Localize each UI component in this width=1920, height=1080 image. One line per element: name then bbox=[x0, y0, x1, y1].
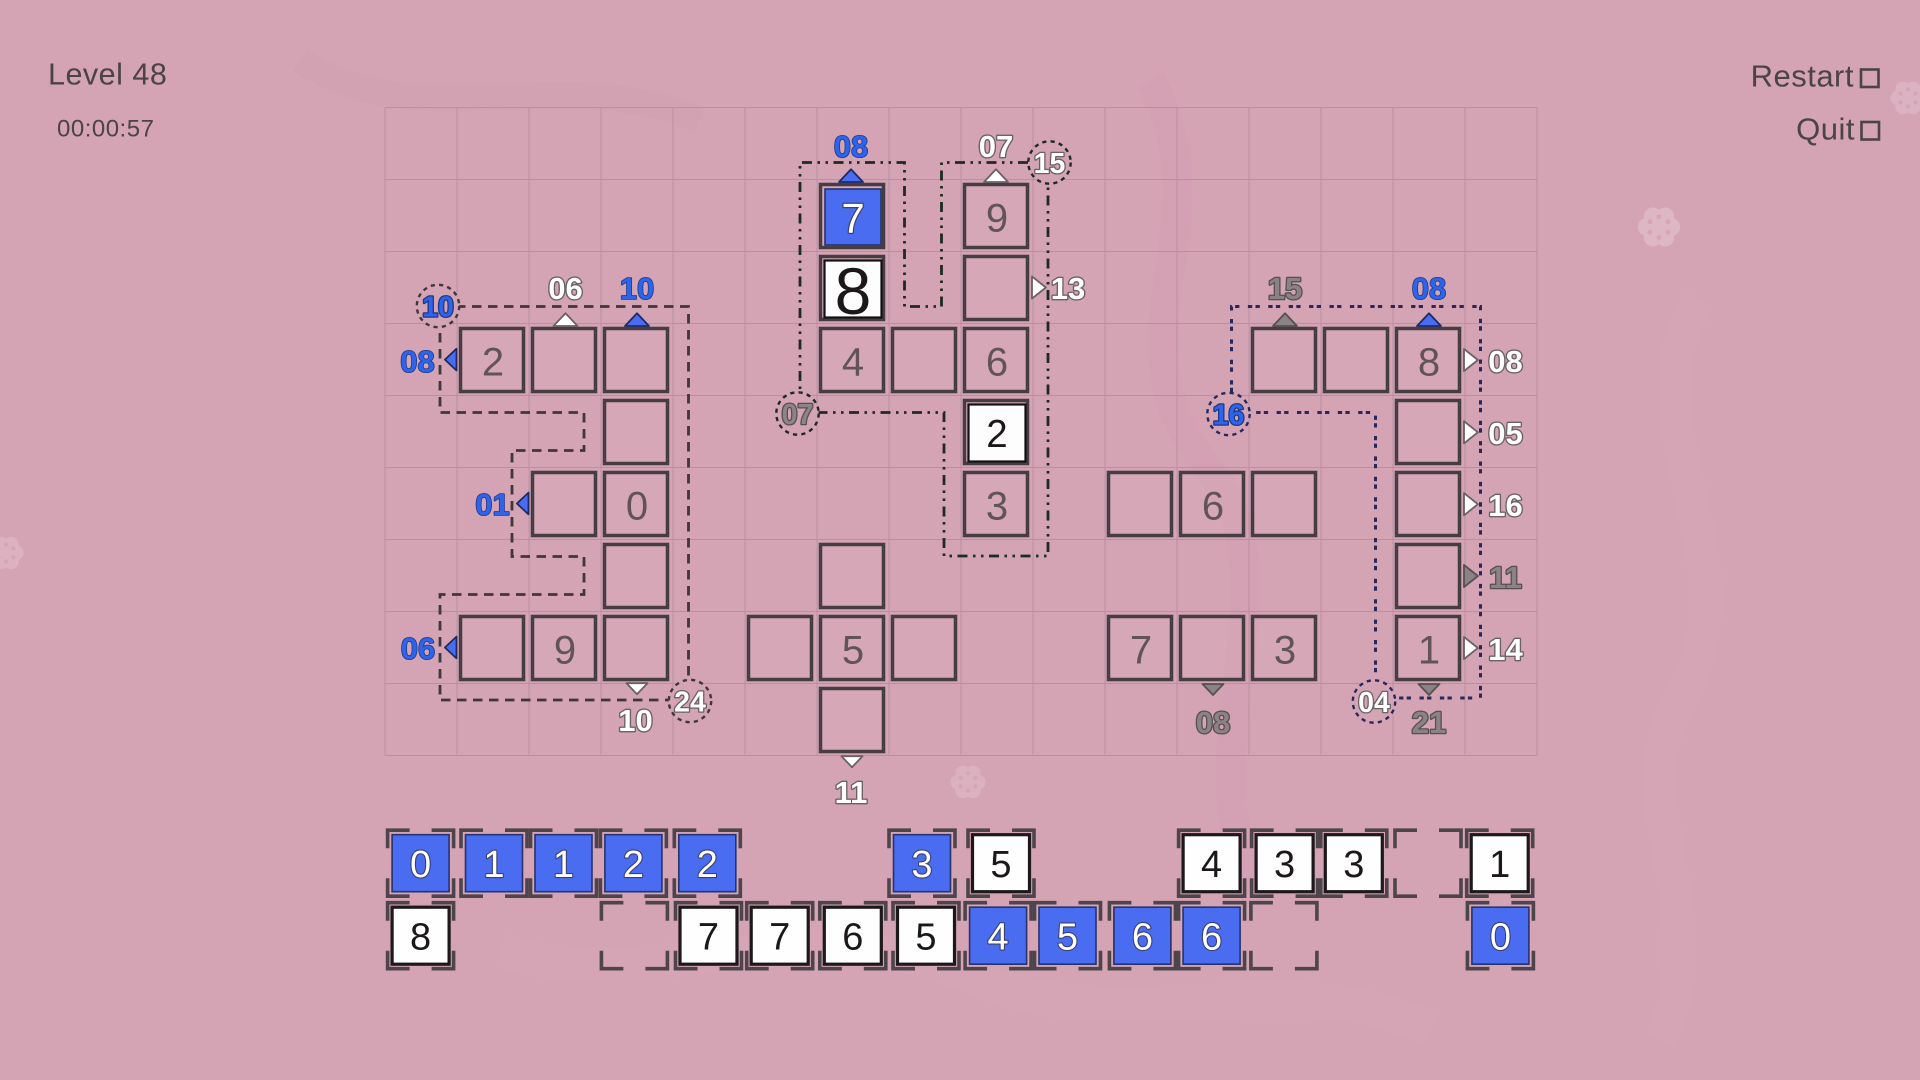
svg-text:4: 4 bbox=[988, 917, 1009, 959]
svg-text:8: 8 bbox=[835, 254, 872, 328]
svg-text:6: 6 bbox=[1132, 917, 1153, 959]
svg-text:7: 7 bbox=[841, 194, 864, 241]
svg-text:9: 9 bbox=[554, 629, 576, 673]
svg-text:07: 07 bbox=[979, 129, 1013, 164]
svg-text:0: 0 bbox=[410, 844, 431, 886]
svg-text:01: 01 bbox=[475, 487, 509, 522]
svg-text:15: 15 bbox=[1268, 271, 1302, 306]
svg-text:24: 24 bbox=[674, 686, 706, 718]
svg-text:3: 3 bbox=[1274, 629, 1296, 673]
svg-text:14: 14 bbox=[1488, 632, 1523, 667]
svg-text:6: 6 bbox=[1201, 917, 1222, 959]
svg-text:04: 04 bbox=[1358, 687, 1390, 719]
svg-text:8: 8 bbox=[410, 917, 431, 959]
svg-text:5: 5 bbox=[842, 629, 864, 673]
svg-text:3: 3 bbox=[1274, 844, 1295, 886]
svg-text:7: 7 bbox=[1130, 629, 1152, 673]
svg-text:08: 08 bbox=[1196, 705, 1230, 740]
svg-text:4: 4 bbox=[842, 341, 864, 385]
svg-text:13: 13 bbox=[1051, 271, 1085, 306]
svg-text:10: 10 bbox=[618, 703, 652, 738]
svg-text:0: 0 bbox=[1490, 917, 1511, 959]
svg-text:08: 08 bbox=[1412, 271, 1446, 306]
svg-text:06: 06 bbox=[401, 631, 435, 666]
svg-text:2: 2 bbox=[697, 844, 718, 886]
svg-text:7: 7 bbox=[769, 917, 790, 959]
svg-text:7: 7 bbox=[698, 917, 719, 959]
svg-text:5: 5 bbox=[1057, 917, 1078, 959]
svg-text:5: 5 bbox=[915, 917, 936, 959]
svg-text:10: 10 bbox=[422, 291, 454, 323]
svg-text:Restart: Restart bbox=[1751, 59, 1854, 94]
svg-text:3: 3 bbox=[986, 485, 1008, 529]
svg-text:3: 3 bbox=[1343, 844, 1364, 886]
svg-text:21: 21 bbox=[1412, 705, 1446, 740]
svg-text:16: 16 bbox=[1213, 399, 1245, 431]
svg-text:Quit: Quit bbox=[1796, 112, 1855, 147]
svg-text:1: 1 bbox=[1418, 629, 1440, 673]
svg-text:08: 08 bbox=[1488, 344, 1522, 379]
svg-text:Level 48: Level 48 bbox=[48, 58, 167, 92]
svg-text:6: 6 bbox=[842, 917, 863, 959]
svg-text:2: 2 bbox=[482, 341, 504, 385]
svg-text:1: 1 bbox=[1489, 844, 1510, 886]
svg-text:16: 16 bbox=[1488, 488, 1522, 523]
svg-text:5: 5 bbox=[990, 844, 1011, 886]
svg-text:8: 8 bbox=[1418, 341, 1440, 385]
svg-text:08: 08 bbox=[400, 344, 434, 379]
svg-text:11: 11 bbox=[1489, 560, 1522, 595]
svg-text:11: 11 bbox=[835, 775, 868, 810]
svg-text:00:00:57: 00:00:57 bbox=[57, 116, 154, 143]
svg-text:2: 2 bbox=[986, 413, 1007, 456]
svg-text:06: 06 bbox=[548, 271, 582, 306]
svg-text:07: 07 bbox=[782, 399, 814, 431]
svg-text:1: 1 bbox=[483, 844, 504, 886]
svg-text:10: 10 bbox=[620, 271, 654, 306]
svg-text:4: 4 bbox=[1201, 844, 1222, 886]
svg-text:6: 6 bbox=[986, 341, 1008, 385]
svg-text:0: 0 bbox=[626, 485, 648, 529]
svg-text:08: 08 bbox=[834, 129, 868, 164]
svg-text:15: 15 bbox=[1034, 148, 1066, 180]
svg-text:3: 3 bbox=[911, 844, 932, 886]
svg-text:9: 9 bbox=[986, 197, 1008, 241]
svg-text:2: 2 bbox=[623, 844, 644, 886]
svg-text:1: 1 bbox=[553, 844, 574, 886]
svg-text:05: 05 bbox=[1488, 416, 1522, 451]
svg-text:6: 6 bbox=[1202, 485, 1224, 529]
